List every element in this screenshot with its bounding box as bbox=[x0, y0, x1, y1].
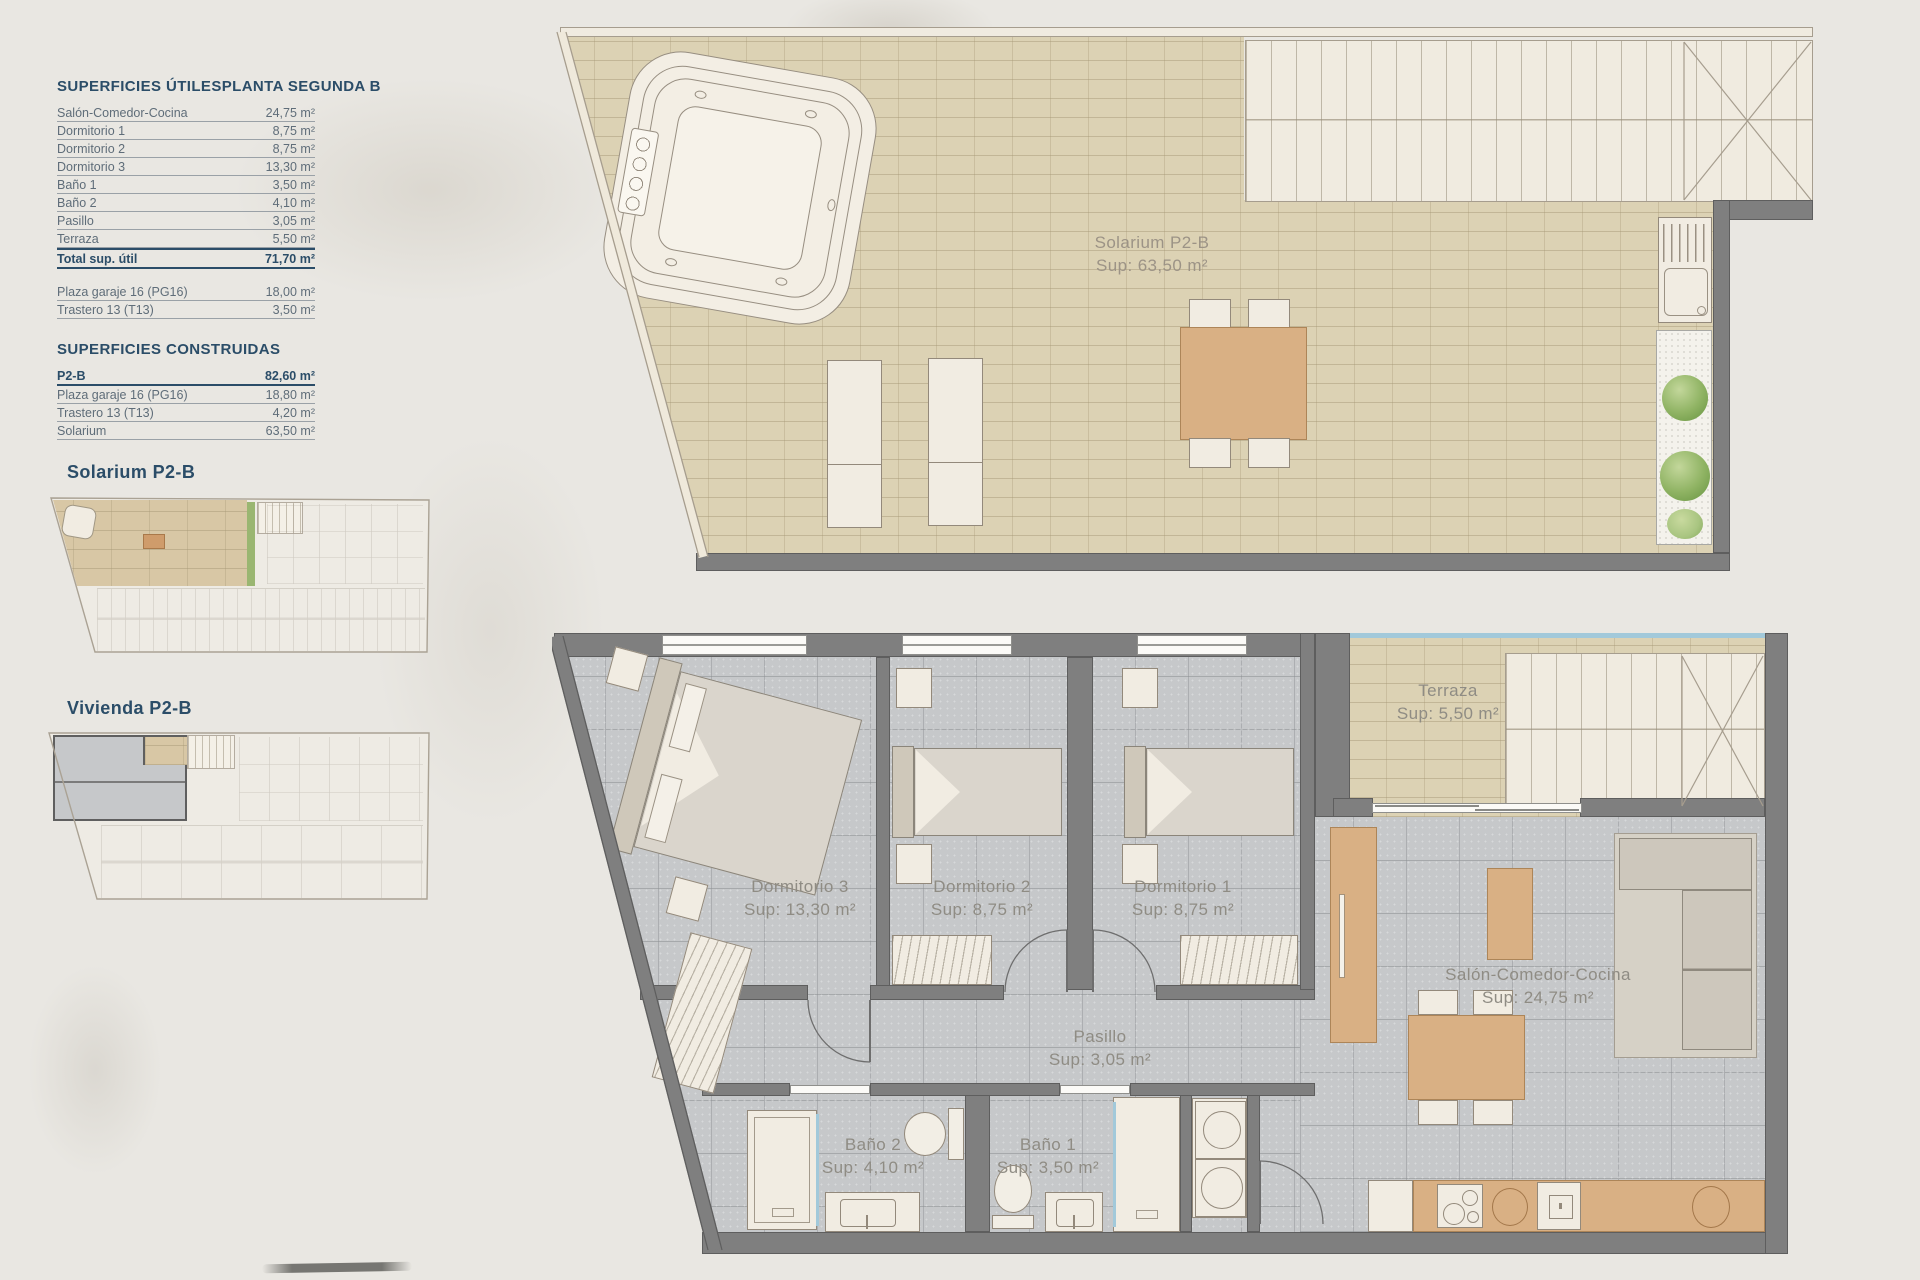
table-row: Dormitorio 313,30 m² bbox=[57, 158, 315, 176]
room-label-bano2: Baño 2 Sup: 4,10 m² bbox=[773, 1134, 973, 1179]
chair bbox=[1473, 1100, 1513, 1125]
table-row: Dormitorio 28,75 m² bbox=[57, 140, 315, 158]
table-row: Solarium63,50 m² bbox=[57, 422, 315, 440]
row-value: 63,50 m² bbox=[266, 424, 315, 438]
room-name: Solarium P2-B bbox=[1042, 232, 1262, 255]
washer-drum bbox=[1203, 1111, 1241, 1149]
wall bbox=[696, 553, 1730, 571]
room-name: Pasillo bbox=[1000, 1026, 1200, 1049]
wall bbox=[1765, 633, 1788, 1254]
jacuzzi bbox=[595, 43, 885, 333]
room-name: Baño 2 bbox=[773, 1134, 973, 1157]
row-label: Dormitorio 3 bbox=[57, 160, 125, 174]
wall bbox=[1300, 633, 1315, 990]
row-label: Solarium bbox=[57, 424, 106, 438]
row-label: Dormitorio 2 bbox=[57, 142, 125, 156]
mini-solarium-keyplan bbox=[35, 492, 435, 664]
mini-faint-lower-units bbox=[101, 825, 423, 898]
useful-areas-header: SUPERFICIES ÚTILES PLANTA SEGUNDA B bbox=[57, 78, 359, 95]
room-area: Sup: 24,75 m² bbox=[1408, 987, 1668, 1010]
nightstand bbox=[896, 668, 932, 708]
room-area: Sup: 5,50 m² bbox=[1348, 703, 1548, 726]
room-area: Sup: 63,50 m² bbox=[1042, 255, 1262, 278]
window bbox=[1137, 635, 1247, 655]
counter-sink-round bbox=[1692, 1186, 1730, 1228]
slider-leaf bbox=[1475, 809, 1579, 811]
wall bbox=[1580, 798, 1765, 817]
table-row: Dormitorio 18,75 m² bbox=[57, 122, 315, 140]
table-row: Pasillo3,05 m² bbox=[57, 212, 315, 230]
room-area: Sup: 13,30 m² bbox=[700, 899, 900, 922]
sofa-back-cushions bbox=[1619, 838, 1752, 890]
bush-plant bbox=[1662, 375, 1708, 421]
floor-plan-sheet: SUPERFICIES ÚTILES PLANTA SEGUNDA B Saló… bbox=[0, 0, 1920, 1280]
wall bbox=[1315, 633, 1350, 817]
vanity-sink bbox=[1045, 1192, 1103, 1232]
stairs bbox=[1505, 653, 1765, 808]
table-row: Salón-Comedor-Cocina24,75 m² bbox=[57, 104, 315, 122]
row-value: 13,30 m² bbox=[266, 160, 315, 174]
wall bbox=[1247, 1095, 1260, 1232]
row-label: Dormitorio 1 bbox=[57, 124, 125, 138]
room-area: Sup: 3,05 m² bbox=[1000, 1049, 1200, 1072]
vivienda-floor-plan: Dormitorio 3 Sup: 13,30 m² Dormitorio 2 … bbox=[552, 628, 1800, 1260]
shower-drain bbox=[1136, 1210, 1158, 1219]
table-row: Terraza5,50 m² bbox=[57, 230, 315, 248]
wall bbox=[1180, 1095, 1192, 1232]
sliding-door bbox=[1060, 1085, 1130, 1094]
table-row: Trastero 13 (T13)4,20 m² bbox=[57, 404, 315, 422]
mini-table-icon bbox=[143, 534, 165, 549]
table-row: Plaza garaje 16 (PG16)18,80 m² bbox=[57, 386, 315, 404]
room-label-terraza: Terraza Sup: 5,50 m² bbox=[1348, 680, 1548, 725]
room-area: Sup: 3,50 m² bbox=[948, 1157, 1148, 1180]
burner bbox=[1462, 1190, 1478, 1206]
sun-lounger bbox=[827, 360, 882, 528]
sofa-chaise bbox=[1682, 890, 1752, 1050]
tap bbox=[866, 1215, 868, 1229]
wall bbox=[1713, 200, 1730, 553]
row-value: 4,20 m² bbox=[273, 406, 315, 420]
row-value: 18,80 m² bbox=[266, 388, 315, 402]
mini-faint-corridor bbox=[97, 588, 425, 651]
room-label-pasillo: Pasillo Sup: 3,05 m² bbox=[1000, 1026, 1200, 1071]
room-label-bano1: Baño 1 Sup: 3,50 m² bbox=[948, 1134, 1148, 1179]
room-label-dormitorio2: Dormitorio 2 Sup: 8,75 m² bbox=[882, 876, 1082, 921]
single-bed bbox=[1124, 746, 1294, 838]
mini-planter bbox=[247, 502, 255, 586]
drainboard-slats bbox=[1663, 224, 1707, 262]
room-area: Sup: 4,10 m² bbox=[773, 1157, 973, 1180]
wall bbox=[1156, 985, 1315, 1000]
row-value: 18,00 m² bbox=[266, 285, 315, 299]
row-value: 8,75 m² bbox=[273, 142, 315, 156]
dryer-drum bbox=[1201, 1167, 1243, 1209]
stairs bbox=[1245, 40, 1813, 202]
mini-faint-rooms bbox=[267, 504, 423, 584]
chair bbox=[1189, 299, 1231, 329]
cooktop bbox=[1437, 1184, 1483, 1228]
outdoor-table bbox=[1180, 327, 1307, 440]
room-area: Sup: 8,75 m² bbox=[882, 899, 1082, 922]
mini-solarium-label: Solarium P2-B bbox=[67, 462, 195, 483]
row-value: 82,60 m² bbox=[265, 369, 315, 383]
dryer bbox=[1195, 1159, 1246, 1217]
row-label: Trastero 13 (T13) bbox=[57, 406, 154, 420]
solarium-floor-plan: Solarium P2-B Sup: 63,50 m² bbox=[556, 24, 1818, 574]
row-label: Baño 1 bbox=[57, 178, 97, 192]
parapet-wall bbox=[560, 27, 1813, 37]
faucet bbox=[1697, 306, 1706, 315]
chair bbox=[1189, 438, 1231, 468]
laundry-stack bbox=[1192, 1098, 1247, 1218]
row-label: Baño 2 bbox=[57, 196, 97, 210]
row-label: Terraza bbox=[57, 232, 99, 246]
room-label-dormitorio3: Dormitorio 3 Sup: 13,30 m² bbox=[700, 876, 900, 921]
row-value: 3,50 m² bbox=[273, 178, 315, 192]
room-name: Salón-Comedor-Cocina bbox=[1408, 964, 1668, 987]
headboard bbox=[1124, 746, 1146, 838]
wall bbox=[870, 985, 1004, 1000]
table-row: Baño 13,50 m² bbox=[57, 176, 315, 194]
kitchen-sink bbox=[1537, 1182, 1581, 1230]
floor-name: PLANTA SEGUNDA B bbox=[222, 78, 381, 95]
headboard bbox=[892, 746, 914, 838]
row-value: 4,10 m² bbox=[273, 196, 315, 210]
tv-unit bbox=[1330, 827, 1377, 1043]
washer bbox=[1195, 1101, 1246, 1159]
tap bbox=[1559, 1203, 1562, 1209]
wall bbox=[1067, 657, 1093, 990]
row-label: Total sup. útil bbox=[57, 252, 137, 266]
wall bbox=[1333, 798, 1373, 817]
table-row: Plaza garaje 16 (PG16)18,00 m² bbox=[57, 283, 315, 301]
wall bbox=[1130, 1083, 1315, 1096]
mini-stairs bbox=[187, 735, 235, 769]
dining-table bbox=[1408, 1015, 1525, 1100]
useful-areas-title: SUPERFICIES ÚTILES bbox=[57, 78, 222, 95]
lounger-backrest-line bbox=[929, 462, 982, 463]
row-value: 3,05 m² bbox=[273, 214, 315, 228]
outdoor-sink-unit bbox=[1658, 217, 1712, 323]
chair bbox=[1248, 438, 1290, 468]
sun-lounger bbox=[928, 358, 983, 526]
sliding-door bbox=[1372, 803, 1582, 813]
room-name: Dormitorio 2 bbox=[882, 876, 1082, 899]
background-stain bbox=[0, 920, 190, 1220]
chair bbox=[1248, 299, 1290, 329]
sliding-door bbox=[790, 1085, 870, 1094]
wardrobe bbox=[892, 935, 992, 985]
wall bbox=[876, 657, 890, 990]
table-row: Trastero 13 (T13)3,50 m² bbox=[57, 301, 315, 319]
total-row: Total sup. útil71,70 m² bbox=[57, 248, 315, 269]
shower-drain bbox=[772, 1208, 794, 1217]
mini-faint-rooms bbox=[239, 737, 423, 821]
row-label: Pasillo bbox=[57, 214, 94, 228]
room-name: Dormitorio 3 bbox=[700, 876, 900, 899]
mini-jacuzzi-icon bbox=[60, 503, 97, 540]
jacuzzi-seat bbox=[655, 103, 824, 272]
window bbox=[662, 635, 807, 655]
single-bed bbox=[892, 746, 1062, 838]
kitchen-island bbox=[1487, 868, 1533, 960]
table-row: Baño 24,10 m² bbox=[57, 194, 315, 212]
room-label-salon: Salón-Comedor-Cocina Sup: 24,75 m² bbox=[1408, 964, 1668, 1009]
table-row: P2-B82,60 m² bbox=[57, 367, 315, 386]
tv-screen bbox=[1339, 894, 1345, 978]
burner bbox=[1467, 1211, 1479, 1223]
toilet-tank bbox=[992, 1215, 1034, 1229]
solarium-label: Solarium P2-B Sup: 63,50 m² bbox=[1042, 232, 1262, 277]
room-label-dormitorio1: Dormitorio 1 Sup: 8,75 m² bbox=[1083, 876, 1283, 921]
row-value: 3,50 m² bbox=[273, 303, 315, 317]
fridge bbox=[1368, 1180, 1413, 1232]
row-value: 71,70 m² bbox=[265, 252, 315, 266]
room-name: Baño 1 bbox=[948, 1134, 1148, 1157]
row-label: P2-B bbox=[57, 369, 85, 383]
row-value: 24,75 m² bbox=[266, 106, 315, 120]
nightstand bbox=[1122, 668, 1158, 708]
sofa bbox=[1614, 833, 1757, 1058]
row-label: Salón-Comedor-Cocina bbox=[57, 106, 188, 120]
burner bbox=[1443, 1203, 1465, 1225]
room-area: Sup: 8,75 m² bbox=[1083, 899, 1283, 922]
vanity-sink bbox=[825, 1192, 920, 1232]
row-value: 5,50 m² bbox=[273, 232, 315, 246]
row-label: Trastero 13 (T13) bbox=[57, 303, 154, 317]
basin bbox=[1056, 1199, 1094, 1227]
palm-plant bbox=[1667, 509, 1703, 539]
row-label: Plaza garaje 16 (PG16) bbox=[57, 388, 188, 402]
terraza-glazing bbox=[1348, 633, 1765, 638]
mini-vivienda-label: Vivienda P2-B bbox=[67, 698, 192, 719]
mini-vivienda-keyplan bbox=[35, 727, 435, 909]
basin bbox=[840, 1199, 896, 1227]
row-value: 8,75 m² bbox=[273, 124, 315, 138]
slider-leaf bbox=[1375, 805, 1479, 807]
mini-highlight-terraza bbox=[143, 737, 187, 765]
chair bbox=[1418, 1100, 1458, 1125]
wardrobe bbox=[1180, 935, 1298, 985]
planter-bed bbox=[1656, 330, 1712, 545]
tap bbox=[1073, 1215, 1075, 1229]
row-label: Plaza garaje 16 (PG16) bbox=[57, 285, 188, 299]
room-name: Dormitorio 1 bbox=[1083, 876, 1283, 899]
built-areas-title: SUPERFICIES CONSTRUIDAS bbox=[57, 341, 359, 358]
ink-smudge bbox=[262, 1262, 412, 1274]
areas-panel: SUPERFICIES ÚTILES PLANTA SEGUNDA B Saló… bbox=[57, 78, 359, 440]
lounger-backrest-line bbox=[828, 464, 881, 465]
window bbox=[902, 635, 1012, 655]
counter-sink-round bbox=[1492, 1188, 1528, 1226]
room-name: Terraza bbox=[1348, 680, 1548, 703]
wall bbox=[702, 1232, 1788, 1254]
bush-plant bbox=[1660, 451, 1710, 501]
